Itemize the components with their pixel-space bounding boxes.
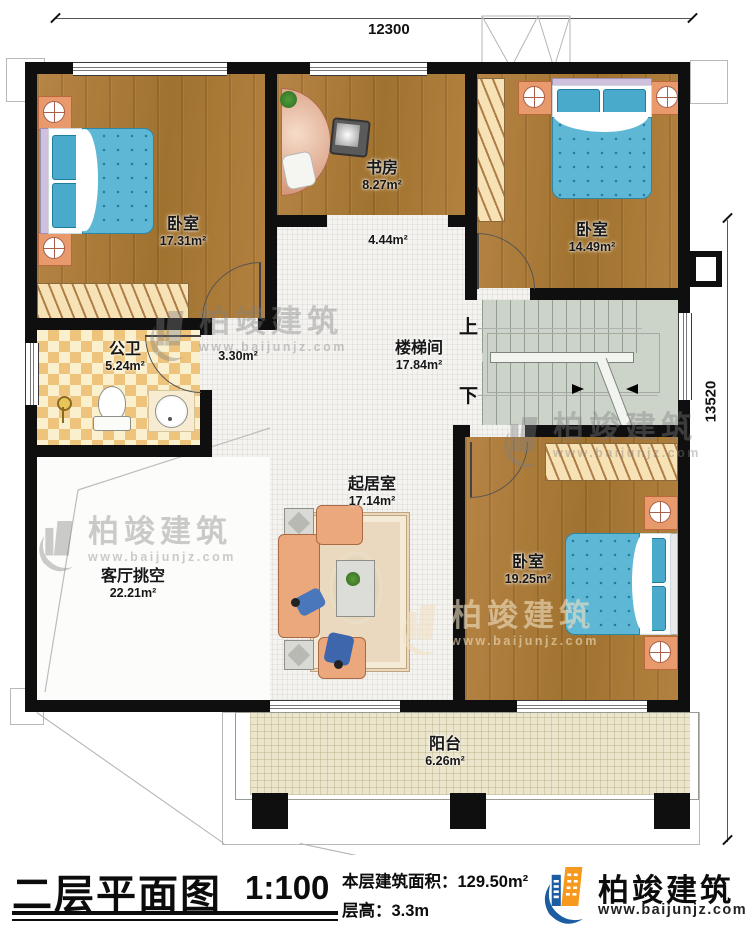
balcony-railing-line [235,712,699,800]
bed1-pillow [52,183,79,228]
wall-bathroom-bottom [25,445,212,457]
room-area: 6.26m² [425,754,465,768]
wall-study-bedroom2 [465,62,477,300]
table-flowers-icon [346,572,360,586]
balcony-column [654,793,690,829]
stair-down-label: 下 [459,381,478,408]
lamp-icon [43,101,65,123]
lamp-icon [523,86,545,108]
study-label: 书房 8.27m² [362,160,402,192]
room-name: 阳台 [425,736,465,754]
stairwell-label: 楼梯间 17.84m² [395,340,443,372]
room-name: 卧室 [505,554,552,572]
room-name: 楼梯间 [395,340,443,358]
floor-plan-sheet: 12300 13520 上 下 [0,0,750,939]
bedroom3-wardrobe [545,443,678,481]
wall-study-bottom-left [277,215,327,227]
lamp-icon [649,501,671,523]
bed1-pillow [52,135,79,180]
balcony-label: 阳台 6.26m² [425,736,465,768]
room-name: 客厅挑空 [101,568,165,586]
floor-height-value: 3.3m [392,902,430,920]
eave-diagonal-left [36,712,224,844]
eave-outline-top-right [690,60,728,104]
floor-height-label: 层高： [342,902,392,920]
bedroom1-wardrobe [37,283,189,320]
top-dimension-text: 12300 [368,21,410,38]
title-underline [12,911,338,915]
wall-bedroom1-bottom [25,318,200,330]
room-name: 公卫 [105,341,145,359]
brand-logo-icon [540,861,592,925]
coffee-table [336,560,375,617]
brand-url: www.baijunjz.com [598,902,747,918]
bed3-quilt [565,533,640,635]
lamp-icon [43,237,65,259]
wall-bedroom1-right [265,62,277,330]
room-name: 起居室 [348,476,396,494]
floor-drain-stem [62,407,64,423]
stair-break-arrow-left [572,384,584,394]
toilet-tank [93,416,131,431]
floor-height-line: 层高：3.3m [342,897,429,921]
title-underline [12,919,338,921]
room-name: 卧室 [160,216,207,234]
bedroom2-wardrobe [477,78,505,222]
floor-area-value: 129.50m² [458,873,529,891]
person-head [334,660,343,669]
room-area: 5.24m² [105,359,145,373]
balcony-column [450,793,486,829]
bed3-fold [632,533,652,633]
wall-bedroom1-bottom-stub [258,318,277,330]
window-stairwell-right [678,313,692,400]
room-area: 19.25m² [505,572,552,586]
wall-bedroom3-left [453,437,465,712]
wall-stairwell-bottom-left [453,425,470,437]
balcony-column [252,793,288,829]
computer-screen [335,123,360,147]
room-area: 22.21m² [101,586,165,600]
title-block: 二层平面图 1:100 本层建筑面积：129.50m² 层高：3.3m 柏竣建筑… [0,855,750,939]
floor-area-line: 本层建筑面积：129.50m² [342,868,528,892]
bathroom-label: 公卫 5.24m² [105,341,145,373]
top-dimension-line [55,18,693,19]
void-edge-outline [37,420,277,700]
side-table [284,640,314,670]
room-name: 卧室 [569,222,616,240]
room-area: 17.14m² [348,494,396,508]
plant-icon [280,91,297,108]
room-area: 14.49m² [569,240,616,254]
lamp-icon [649,641,671,663]
room-name: 书房 [362,160,402,178]
right-dimension-text: 13520 [702,381,719,423]
window-study-top [310,62,427,76]
stair-break-arrow-right [626,384,638,394]
stair-up-label: 上 [459,312,478,339]
sink-icon [155,395,188,428]
room-area: 4.44m² [368,233,408,247]
lamp-icon [656,86,678,108]
room-area: 17.31m² [160,234,207,248]
corridor-area-label: 3.30m² [218,349,258,363]
bedroom3-label: 卧室 19.25m² [505,554,552,586]
right-dimension-line [727,220,728,842]
room-area: 8.27m² [362,178,402,192]
floor-area-label: 本层建筑面积： [342,873,458,891]
sink-faucet-dot [168,417,172,421]
stair-guide-line-up [478,328,642,329]
wall-stairwell-bottom-right [525,425,690,437]
room-area: 3.30m² [218,349,258,363]
stair-guide-line-down [478,395,658,396]
hall-area-label: 4.44m² [368,233,408,247]
window-bedroom1-top [73,62,227,76]
bedroom1-label: 卧室 17.31m² [160,216,207,248]
flue-box [690,251,722,287]
window-bathroom-left [25,343,39,405]
wall-bedroom2-bottom [530,288,690,300]
floor-drain-icon [57,396,72,411]
person-head [291,598,300,607]
living-label: 起居室 17.14m² [348,476,396,508]
sheet-scale: 1:100 [245,869,329,907]
void-label: 客厅挑空 22.21m² [101,568,165,600]
wall-bathroom-right-upper [200,318,212,335]
room-area: 17.84m² [395,358,443,372]
bedroom2-label: 卧室 14.49m² [569,222,616,254]
stair-handrail [490,352,634,363]
sofa-long [278,534,320,638]
armchair [316,505,363,545]
